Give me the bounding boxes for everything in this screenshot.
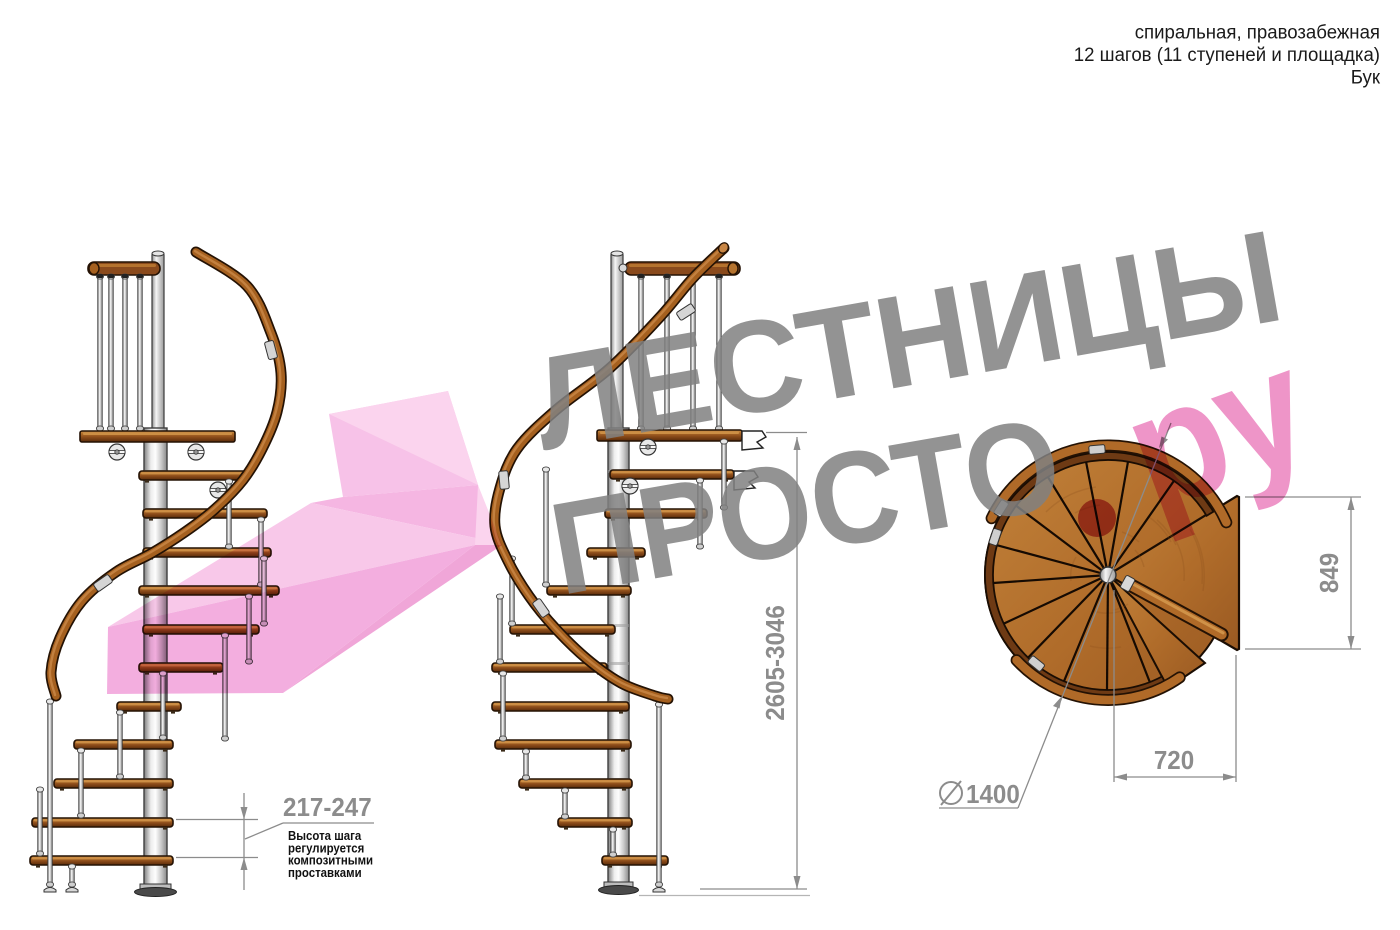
svg-text:849: 849 <box>1315 553 1344 593</box>
svg-text:12 шагов (11 ступеней и площад: 12 шагов (11 ступеней и площадка) <box>1074 44 1380 65</box>
svg-text:1400: 1400 <box>966 780 1020 809</box>
svg-text:спиральная, правозабежная: спиральная, правозабежная <box>1135 21 1380 42</box>
svg-text:720: 720 <box>1154 746 1194 775</box>
svg-text:Высота шага регулируетсякомпоз: Высота шага регулируетсякомпозитнымипрос… <box>288 828 373 880</box>
svg-text:Бук: Бук <box>1351 66 1381 87</box>
svg-text:217-247: 217-247 <box>283 793 372 822</box>
svg-text:2605-3046: 2605-3046 <box>761 605 790 721</box>
